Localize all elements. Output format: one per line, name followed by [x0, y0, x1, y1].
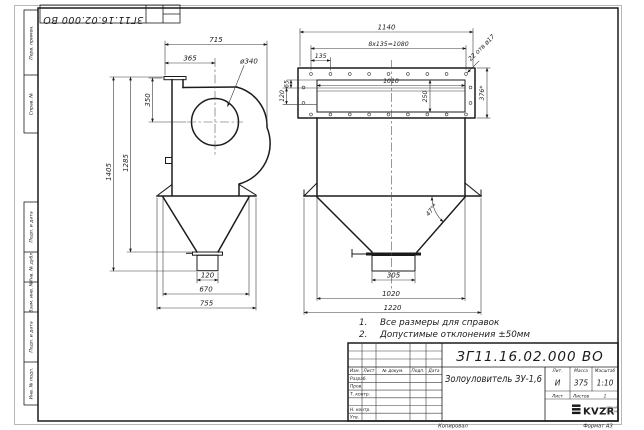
- kopiroval-label: Копировал: [438, 424, 468, 430]
- col-data: Дата: [427, 368, 439, 374]
- note-1-number: 1.: [359, 318, 367, 328]
- stamp-podp-data-1: Подп. и дата: [29, 211, 35, 242]
- side-view-outline: [157, 77, 270, 271]
- dim-1020: 1020: [382, 290, 400, 298]
- dim-angle-47: 47°*: [424, 202, 439, 218]
- front-view: 1140 8x135=1080 135 22 отв ø17 376* 65 1…: [279, 24, 497, 315]
- side-view: 715 365 ø340 350 1405 1285 120 670: [105, 36, 270, 310]
- title-block: Изм. Лист № докум. Подп. Дата Разраб. Пр…: [348, 343, 618, 421]
- sheets-label: Листов: [572, 393, 590, 399]
- note-2-number: 2.: [359, 330, 367, 340]
- org-line-2: ЗАВОД РФ: [606, 410, 617, 414]
- dim-135: 135: [315, 53, 327, 60]
- dim-250: 250: [422, 91, 429, 103]
- dim-1405: 1405: [105, 163, 113, 181]
- stamp-perv-primen: Перв. примен.: [29, 25, 35, 60]
- product-name: Золоуловитель ЗУ-1,6: [445, 374, 542, 385]
- dim-dia340: ø340: [239, 58, 258, 66]
- notes: 1. Все размеры для справок 2. Допустимые…: [359, 318, 530, 340]
- dim-1220: 1220: [384, 304, 402, 312]
- dim-365: 365: [183, 55, 197, 63]
- drawing-sheet: Перв. примен. Справ. № Подп. и дата Инв.…: [0, 0, 644, 430]
- row-utv: Утв.: [350, 415, 359, 421]
- dim-120-front: 120: [279, 90, 286, 102]
- dim-pitch: 8x135=1080: [368, 41, 408, 48]
- dim-120-side: 120: [201, 272, 215, 280]
- col-podp: Подп.: [411, 368, 424, 374]
- dim-755: 755: [200, 300, 214, 308]
- mass-label: Масса: [574, 368, 588, 374]
- stamp-inv-podl: Инв. № подл.: [29, 368, 35, 400]
- stamp-inv-dubl: Инв. № дубл.: [29, 251, 35, 282]
- doc-number: ЗГ11.16.02.000 ВО: [456, 349, 604, 365]
- row-prov: Пров.: [350, 384, 363, 390]
- col-izm: Изм.: [350, 368, 360, 374]
- col-list: Лист: [363, 368, 375, 374]
- note-2-text: Допустимые отклонения ±50мм: [379, 330, 530, 340]
- dim-65: 65: [284, 80, 291, 88]
- sheet-label: Лист: [551, 393, 563, 399]
- side-view-centerlines: [187, 58, 243, 156]
- mass-value: 375: [574, 379, 589, 388]
- left-margin-stamps: Перв. примен. Справ. № Подп. и дата Инв.…: [24, 10, 38, 405]
- stamp-vzam-inv: Взам. инв. №: [29, 281, 35, 312]
- lit-label: Лит.: [552, 368, 563, 374]
- row-n-kontr: Н. контр.: [350, 407, 371, 413]
- dim-holes-note: 22 отв ø17: [467, 33, 496, 62]
- dim-1010: 1010: [383, 78, 399, 85]
- stamp-sprav-no: Справ. №: [29, 93, 35, 116]
- engineering-drawing: Перв. примен. Справ. № Подп. и дата Инв.…: [0, 0, 644, 430]
- dim-670: 670: [199, 286, 213, 294]
- dim-715: 715: [209, 36, 223, 44]
- dim-376: 376*: [479, 86, 486, 101]
- kvzr-logo: KVZR КОТЕЛЬНЫЙ ЗАВОД РФ: [572, 405, 618, 418]
- dim-350: 350: [144, 93, 152, 107]
- dim-1140: 1140: [378, 24, 396, 32]
- scale-label: Масштаб: [595, 368, 616, 374]
- col-dokum: № докум.: [381, 368, 403, 374]
- dim-305: 305: [387, 272, 401, 280]
- scale-value: 1:10: [597, 379, 614, 388]
- dim-1285: 1285: [122, 154, 130, 172]
- format-label: Формат A3: [583, 424, 613, 430]
- front-view-outline: [298, 68, 481, 271]
- row-razrab: Разраб.: [350, 376, 367, 382]
- row-t-kontr: Т. контр.: [350, 391, 370, 397]
- front-view-dimensions: 1140 8x135=1080 135 22 отв ø17 376* 65 1…: [279, 24, 497, 315]
- stamp-podp-data-2: Подп. и дата: [29, 321, 35, 352]
- lit-value: И: [555, 379, 561, 388]
- top-doc-number: ЗГ11.16.02.000 ВО: [43, 14, 143, 25]
- sheets-value: 1: [604, 393, 607, 399]
- note-1-text: Все размеры для справок: [380, 318, 500, 328]
